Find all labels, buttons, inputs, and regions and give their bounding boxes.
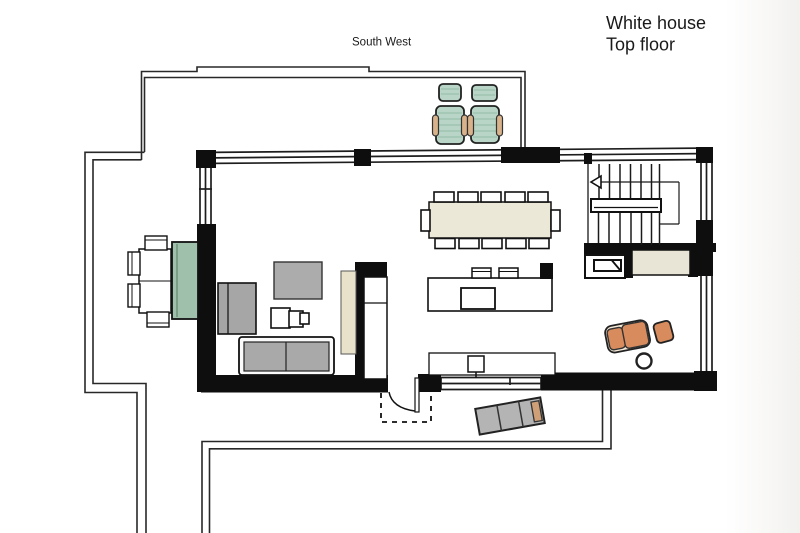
svg-text:White house: White house — [606, 13, 706, 33]
svg-text:Top floor: Top floor — [606, 35, 675, 55]
svg-text:South West: South West — [352, 37, 412, 49]
